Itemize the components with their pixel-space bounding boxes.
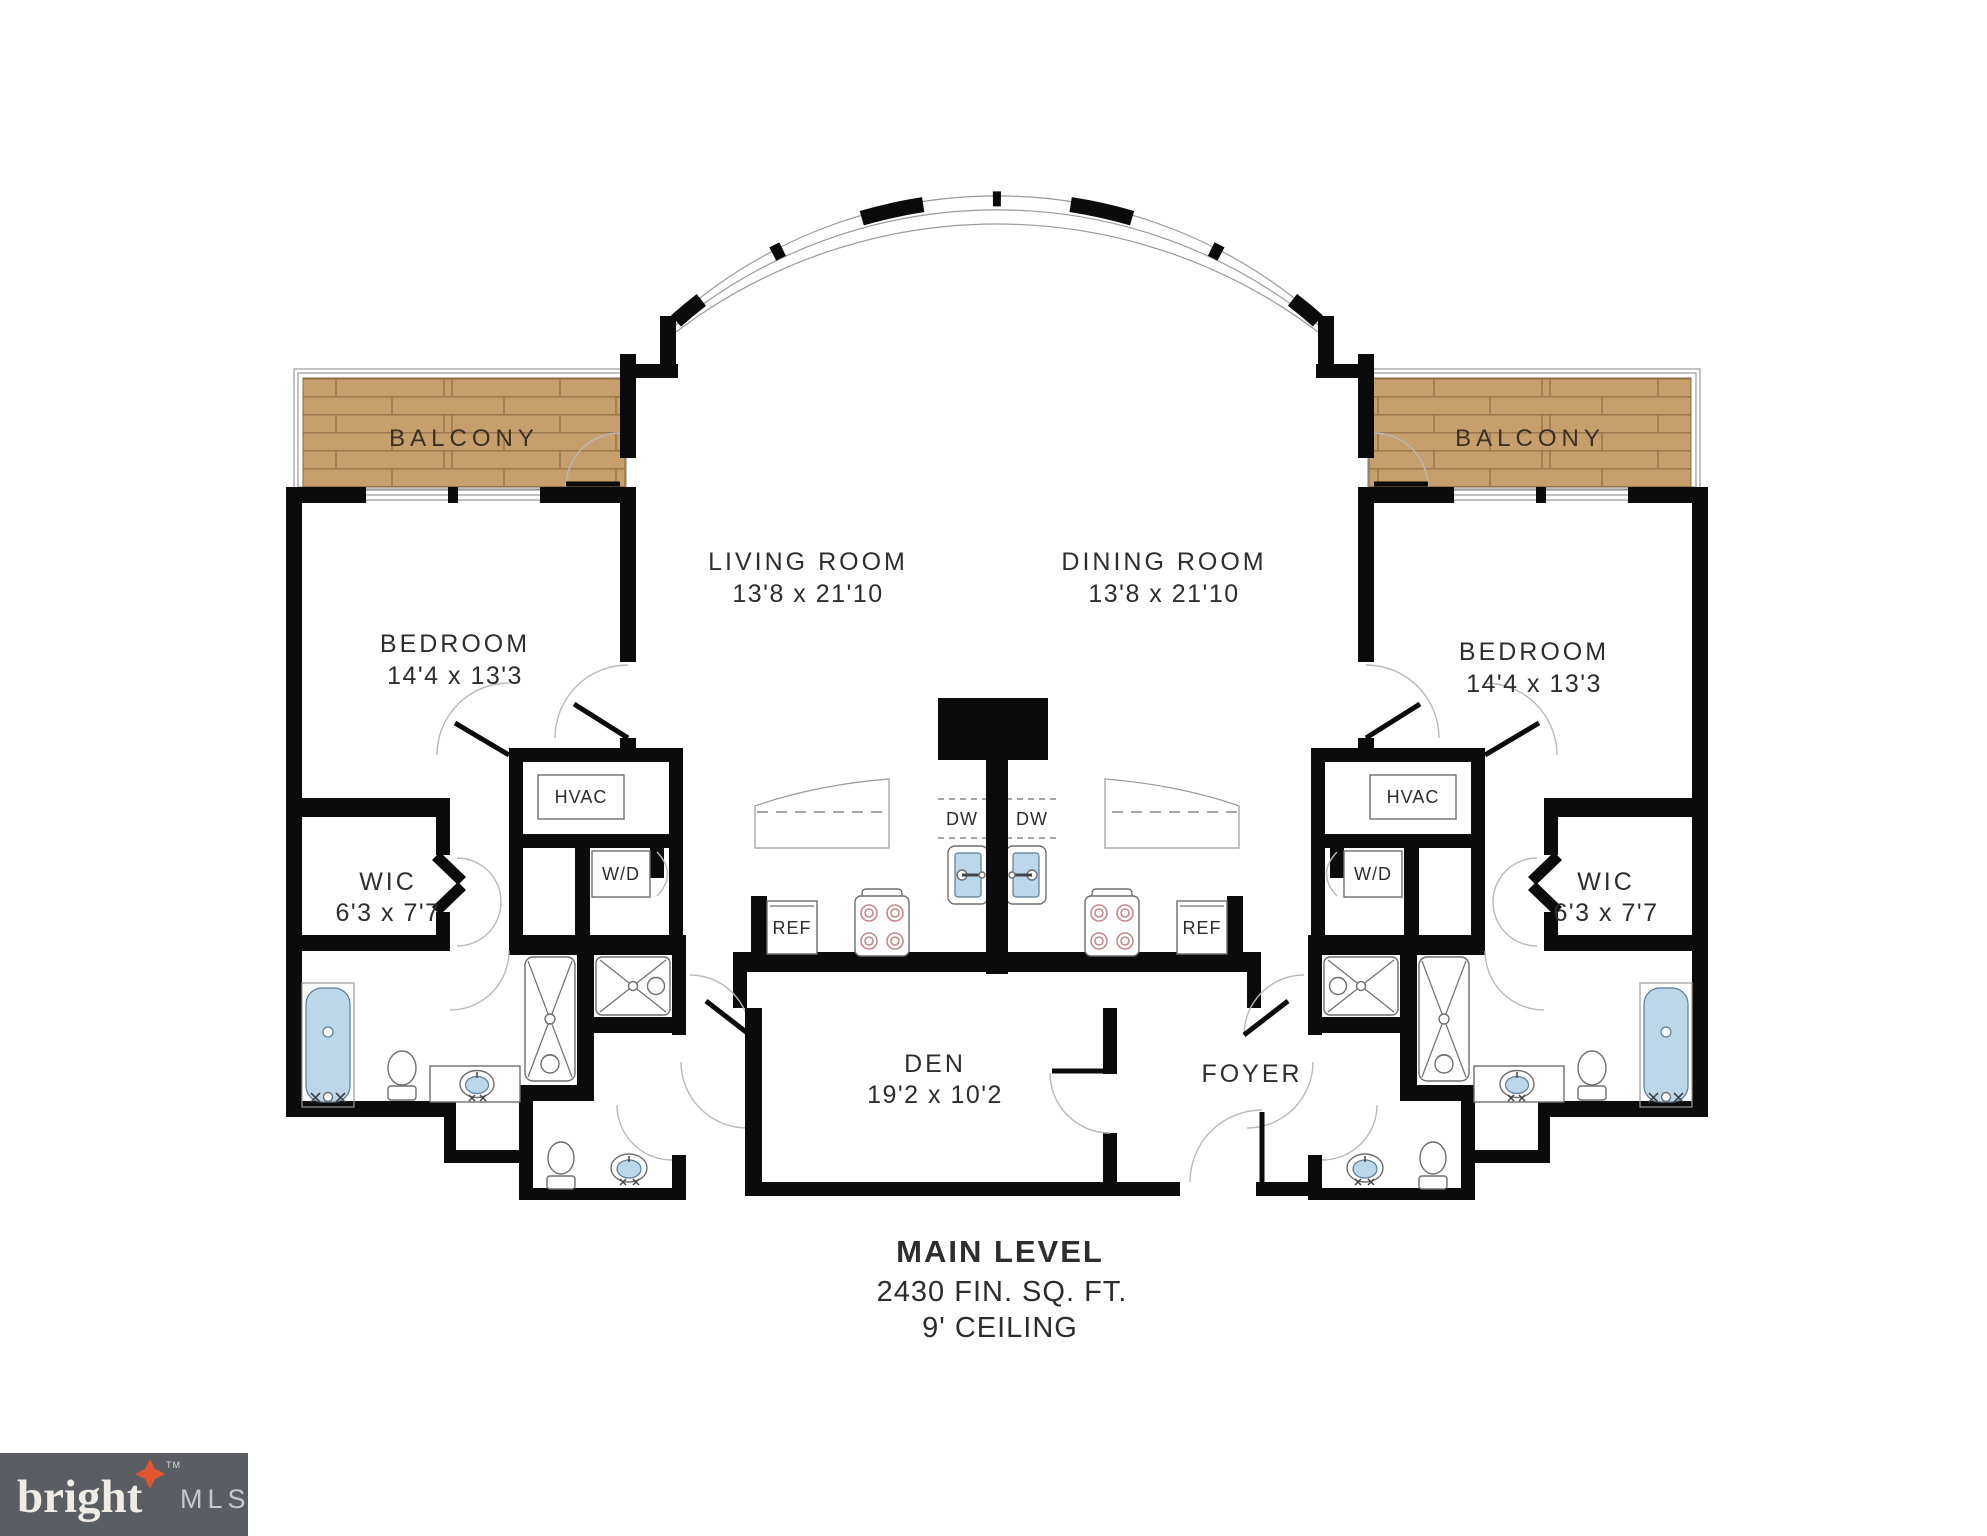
dining-room-label: DINING ROOM	[1061, 548, 1266, 576]
bright-mls-logo: bright TM MLS	[0, 1453, 251, 1536]
dw-left-label: DW	[946, 809, 978, 829]
bedroom-right-label: BEDROOM	[1459, 638, 1609, 666]
floor-plan-page: BALCONY BALCONY LIVING ROOM 13'8 x 21'10…	[0, 0, 1987, 1536]
footer: MAIN LEVEL 2430 FIN. SQ. FT. 9' CEILING	[877, 1234, 1128, 1344]
wd-right-label: W/D	[1354, 864, 1392, 884]
kitchen-center-wall	[986, 760, 1008, 974]
den-dims: 19'2 x 10'2	[867, 1081, 1003, 1109]
bedroom-right-dims: 14'4 x 13'3	[1466, 670, 1602, 698]
logo-tm-text: TM	[166, 1460, 181, 1470]
living-room-dims: 13'8 x 21'10	[732, 580, 883, 608]
arc-window-wall	[676, 196, 1318, 332]
level-title: MAIN LEVEL	[896, 1234, 1104, 1269]
wic-left-label: WIC	[359, 868, 417, 896]
dw-right-label: DW	[1016, 809, 1048, 829]
balcony-right-label: BALCONY	[1455, 425, 1605, 452]
wd-left-label: W/D	[602, 864, 640, 884]
ref-left-label: REF	[773, 918, 812, 938]
ceiling-text: 9' CEILING	[922, 1312, 1078, 1344]
logo-brand-text: bright	[17, 1471, 143, 1523]
wic-right-label: WIC	[1577, 868, 1635, 896]
hvac-right-label: HVAC	[1387, 787, 1440, 807]
wic-left-dims: 6'3 x 7'7	[335, 899, 440, 927]
ref-right-label: REF	[1183, 918, 1222, 938]
balcony-left-label: BALCONY	[389, 425, 539, 452]
bedroom-left-label: BEDROOM	[380, 630, 530, 658]
kitchen-island-block	[938, 698, 1048, 760]
bedroom-left-dims: 14'4 x 13'3	[387, 662, 523, 690]
living-room-label: LIVING ROOM	[708, 548, 908, 576]
dining-room-dims: 13'8 x 21'10	[1088, 580, 1239, 608]
wic-right-dims: 6'3 x 7'7	[1553, 899, 1658, 927]
den-label: DEN	[904, 1050, 966, 1078]
hvac-left-label: HVAC	[555, 787, 608, 807]
area-text: 2430 FIN. SQ. FT.	[877, 1276, 1128, 1308]
floor-plan-svg: BALCONY BALCONY LIVING ROOM 13'8 x 21'10…	[0, 0, 1987, 1536]
logo-mls-text: MLS	[180, 1484, 251, 1514]
foyer-label: FOYER	[1201, 1060, 1302, 1088]
